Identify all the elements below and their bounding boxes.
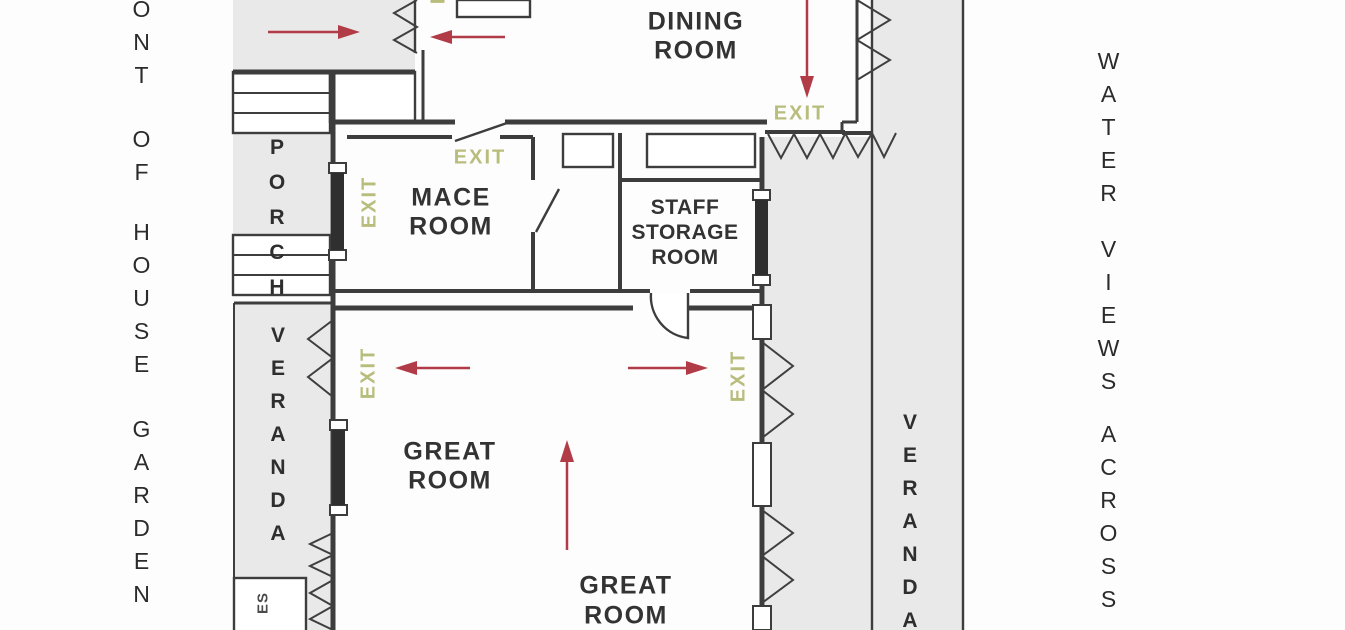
margin-left-word-2: OF <box>130 126 153 192</box>
great-room-upper-label-line1: GREAT <box>403 438 496 467</box>
arrow-down-dining <box>800 0 814 98</box>
great-room-lower-label-line2: ROOM <box>584 602 668 630</box>
veranda-west-door <box>332 430 345 505</box>
margin-right-word-1: WATER <box>1097 48 1120 213</box>
veranda-right-label: VERANDA <box>900 411 921 630</box>
great-room-lower-label-line1: GREAT <box>579 572 672 601</box>
great-room-upper-label-line2: ROOM <box>408 467 492 496</box>
arrow-right-great-room <box>628 361 708 375</box>
margin-left-word-4: GARDEN <box>130 416 153 614</box>
staff-storage-label-line1: STAFF <box>651 196 720 220</box>
exit-label-great-east: EXIT <box>728 350 751 402</box>
staff-storage-label-line2: STORAGE <box>632 221 739 245</box>
floor-plan: ONT OF HOUSE GARDEN WATER VIEWS ACROSS P… <box>0 0 1345 630</box>
toilets-partial-label: ES <box>255 592 272 614</box>
margin-left-word-3: HOUSE <box>130 219 153 384</box>
veranda-left-label: VERANDA <box>268 324 289 555</box>
exit-label-great-west: EXIT <box>358 347 381 399</box>
exit-label-mace-north: EXIT <box>454 147 506 170</box>
porch-door <box>331 173 344 250</box>
exit-label-dining: EXIT <box>774 103 826 126</box>
staff-storage-label-line3: ROOM <box>651 246 718 270</box>
margin-right-word-2: VIEWS <box>1097 236 1120 401</box>
porch-label: PORCH <box>267 136 288 311</box>
arrow-up-great-room <box>560 440 574 550</box>
arrow-left-dining <box>430 30 505 44</box>
mace-room-label-line1: MACE <box>411 184 491 213</box>
exit-label-top-cut: EXIT <box>428 0 451 4</box>
arrow-left-great-room <box>395 361 470 375</box>
dining-room-label-line2: ROOM <box>654 37 738 66</box>
storage-east-door <box>755 200 768 275</box>
mace-room-label-line2: ROOM <box>409 213 493 242</box>
dining-room-label-line1: DINING <box>648 8 745 37</box>
floor-plan-drawing <box>0 0 1345 630</box>
margin-left-word-1: ONT <box>130 0 153 95</box>
margin-right-word-3: ACROSS <box>1097 421 1120 619</box>
exit-label-mace-west: EXIT <box>359 176 382 228</box>
